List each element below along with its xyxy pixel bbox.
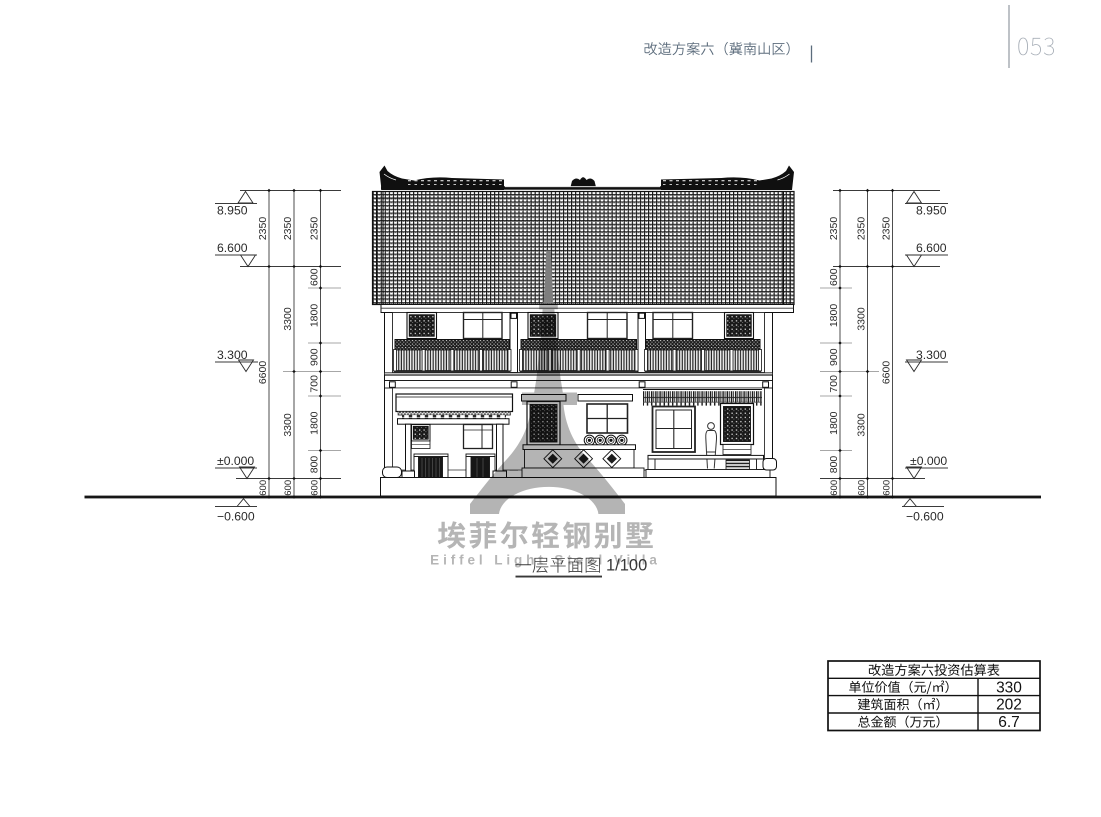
svg-text:1800: 1800 (828, 411, 840, 435)
svg-text:3.300: 3.300 (916, 348, 947, 362)
svg-text:1800: 1800 (828, 304, 840, 328)
svg-text:600: 600 (856, 480, 867, 496)
svg-text:3300: 3300 (282, 307, 294, 331)
svg-text:2350: 2350 (880, 217, 892, 241)
svg-text:600: 600 (881, 480, 892, 496)
svg-text:6.600: 6.600 (916, 241, 947, 255)
svg-text:±0.000: ±0.000 (910, 454, 947, 468)
svg-text:2350: 2350 (282, 217, 294, 241)
svg-text:8.950: 8.950 (217, 204, 248, 218)
svg-text:600: 600 (283, 480, 294, 496)
svg-text:3300: 3300 (282, 413, 294, 437)
svg-text:3.300: 3.300 (217, 348, 248, 362)
svg-text:2350: 2350 (257, 217, 269, 241)
svg-text:6.600: 6.600 (217, 241, 248, 255)
svg-text:−0.600: −0.600 (906, 510, 944, 524)
svg-text:1/100: 1/100 (606, 557, 647, 575)
svg-text:202: 202 (996, 697, 1022, 714)
svg-text:900: 900 (308, 348, 320, 366)
svg-text:330: 330 (996, 679, 1022, 696)
svg-text:2350: 2350 (828, 217, 840, 241)
svg-text:600: 600 (828, 268, 840, 286)
svg-text:3300: 3300 (855, 413, 867, 437)
svg-text:600: 600 (258, 480, 269, 496)
svg-text:700: 700 (308, 375, 320, 393)
svg-text:700: 700 (828, 375, 840, 393)
svg-text:8.950: 8.950 (916, 204, 947, 218)
svg-text:600: 600 (829, 480, 840, 496)
svg-text:800: 800 (828, 456, 840, 474)
svg-text:±0.000: ±0.000 (217, 454, 254, 468)
svg-text:6600: 6600 (257, 361, 269, 385)
svg-text:900: 900 (828, 348, 840, 366)
svg-text:6600: 6600 (880, 361, 892, 385)
svg-text:6.7: 6.7 (998, 714, 1020, 731)
svg-text:1800: 1800 (308, 411, 320, 435)
svg-text:600: 600 (308, 268, 320, 286)
svg-text:1800: 1800 (308, 304, 320, 328)
svg-text:600: 600 (309, 480, 320, 496)
svg-text:3300: 3300 (855, 307, 867, 331)
svg-text:800: 800 (308, 456, 320, 474)
svg-text:2350: 2350 (855, 217, 867, 241)
svg-text:−0.600: −0.600 (217, 510, 255, 524)
svg-text:2350: 2350 (308, 217, 320, 241)
